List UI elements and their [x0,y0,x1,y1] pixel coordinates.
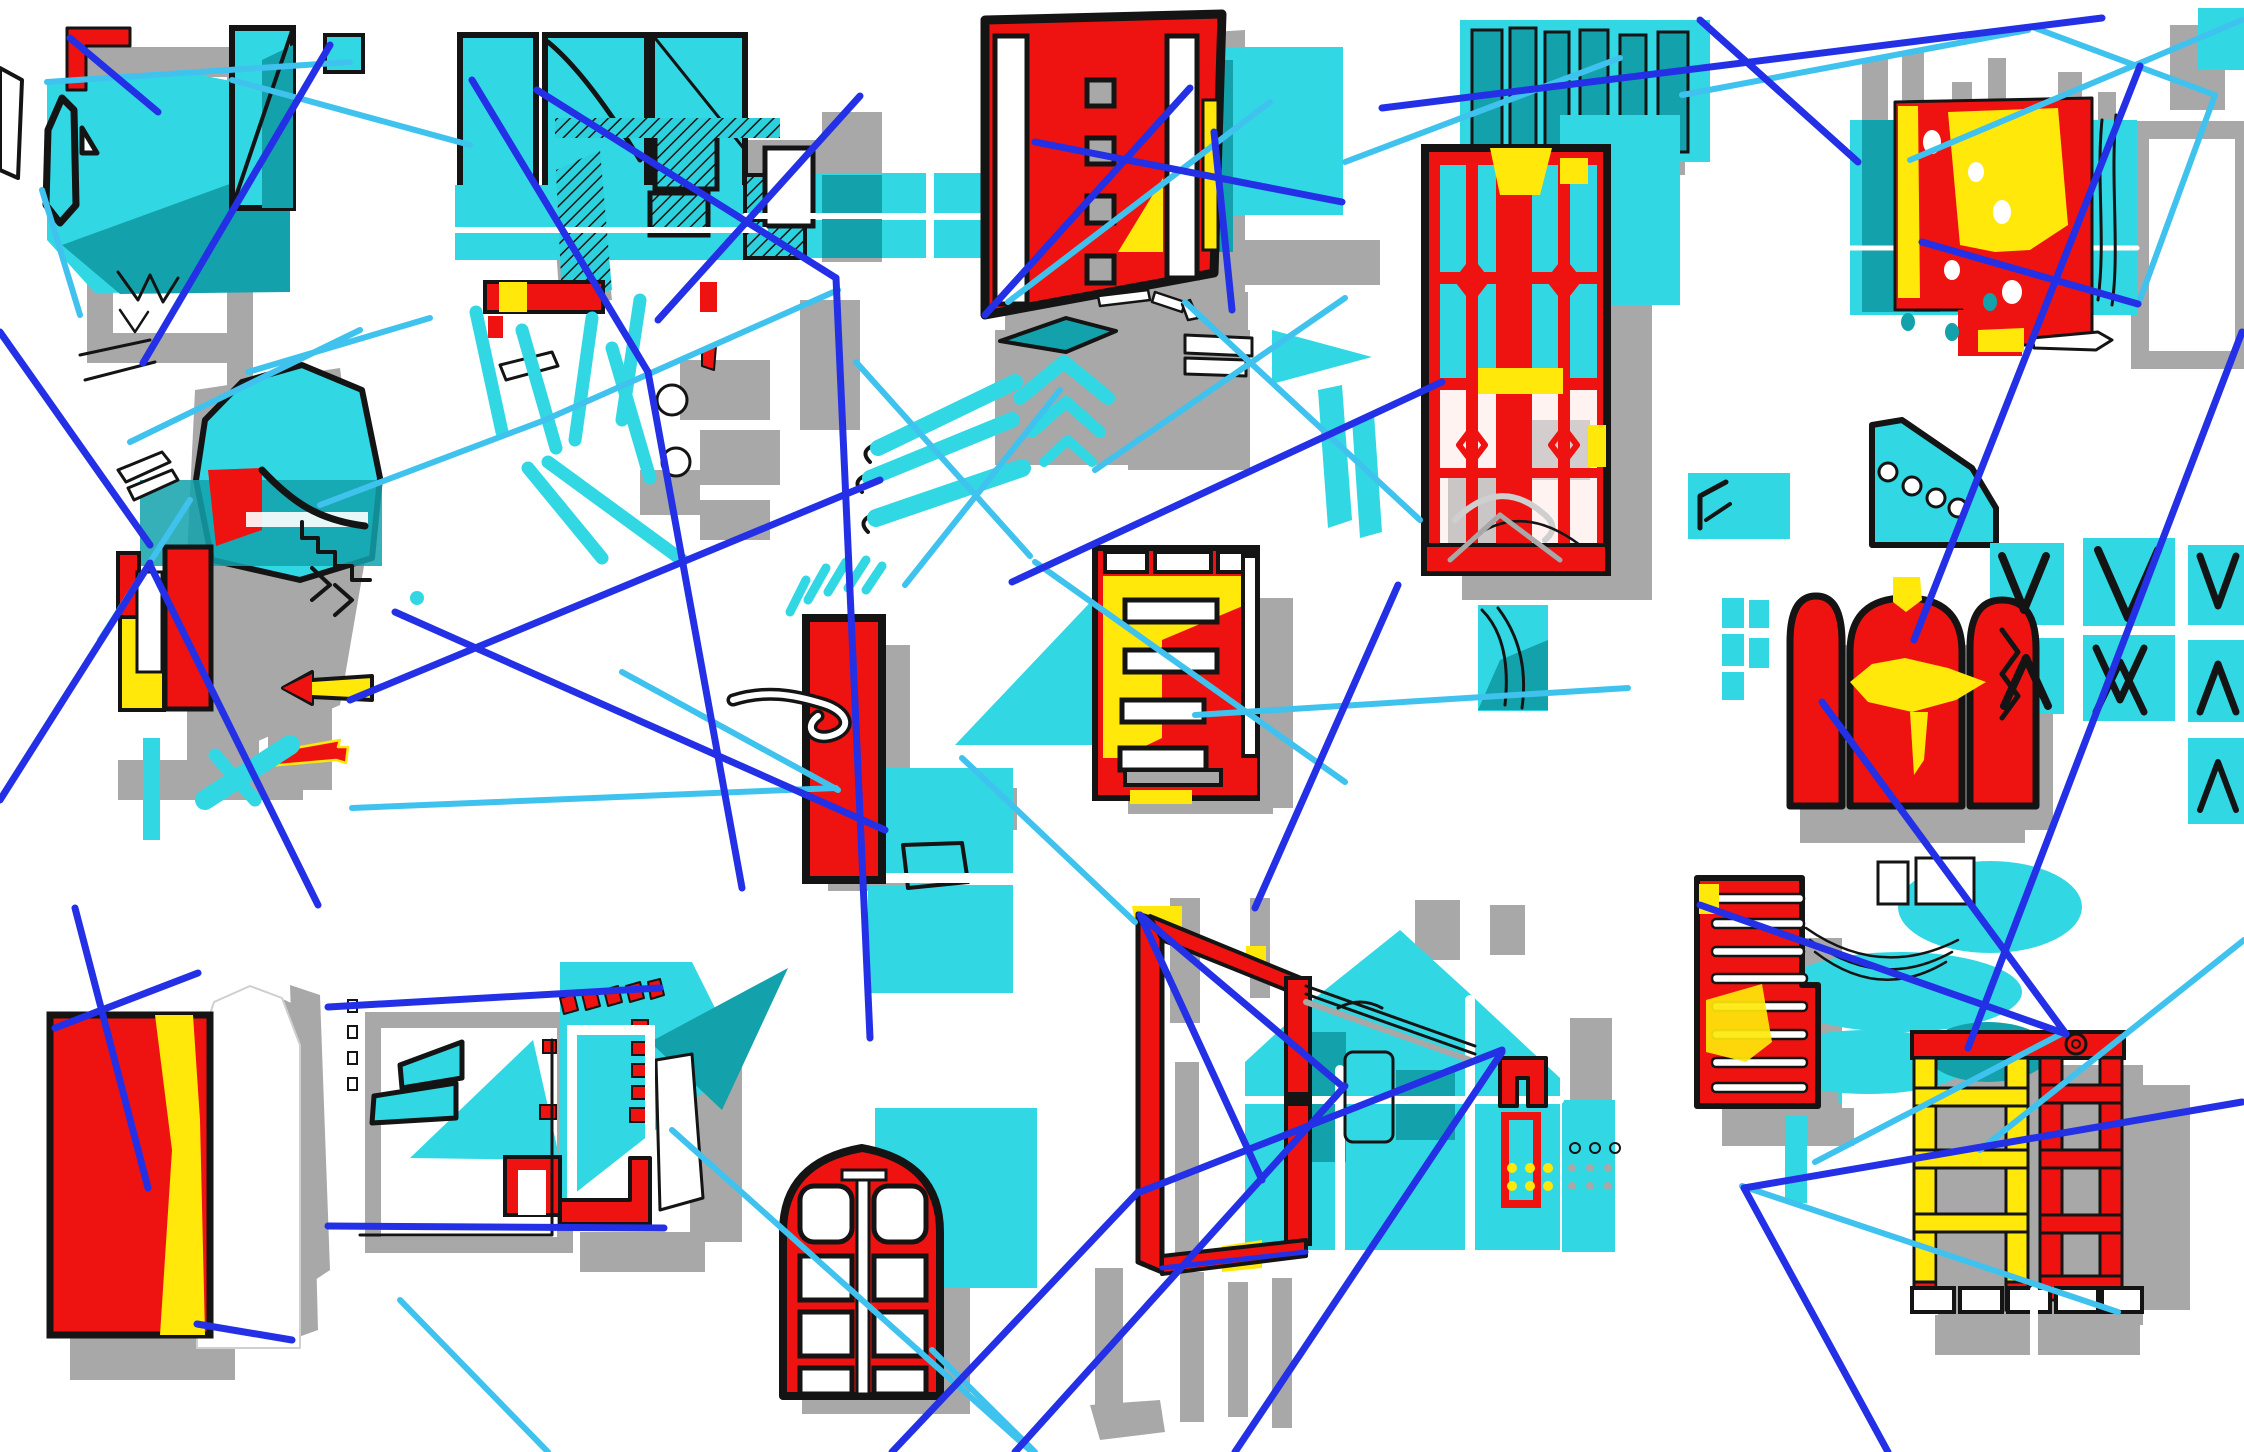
gray-blob-b5 [700,500,770,540]
slot-1 [1125,600,1217,622]
gray-dot-2 [1586,1164,1594,1172]
gray-hang-r3 [1272,1278,1292,1428]
drip-yellow-2 [1948,108,2068,252]
cyan-strip-t [1785,1115,1807,1203]
pane-l4 [800,1368,852,1394]
cyan-flag-o2 [372,1083,456,1123]
arch-narrow [1790,596,1842,806]
gothic-rail-3 [1440,468,1597,478]
banner-fuzz-3 [828,562,846,592]
gray-blob-r2 [1490,905,1525,955]
sky-line-5 [248,318,430,372]
cyan-shard-1 [1318,385,1352,528]
door-inner-white-right [1167,36,1197,278]
ladder-rd-rung-3 [2040,1215,2122,1233]
drip-teal-3 [1983,293,1997,311]
scribble-v-2 [120,310,148,332]
drip-hole-2 [1968,162,1984,182]
yellow-cell-b [499,282,527,312]
comb-slot-3 [1712,947,1804,956]
comb-slot-7 [1712,1058,1807,1067]
red-column-f [165,547,211,709]
yellow-dot-1 [1507,1163,1517,1173]
gothic-mullion-1 [1466,165,1478,555]
gray-hang-r2 [1228,1282,1248,1417]
base-block-1 [1912,1288,1954,1312]
banner-fuzz-5 [866,566,882,590]
slot-4 [1120,748,1206,770]
trap-mid-gap [1286,1092,1310,1106]
drip-yellow-bottom [1978,328,2024,352]
gray-block-b1 [800,300,860,430]
header-cell-2 [1155,552,1211,572]
cyan-corner-tr [2198,8,2244,70]
red-u-o-slot [518,1170,546,1215]
yellow-dot-6 [1543,1181,1553,1191]
sky-line-23 [400,1300,548,1452]
gray-dot-3 [1604,1164,1612,1172]
pane-l2 [800,1256,852,1300]
pane-l1 [800,1186,852,1242]
red-bit-o1 [540,1105,556,1119]
drip-hole-5 [2002,280,2022,304]
red-bit-b1 [488,316,503,338]
cyan-square-small-a [325,35,363,72]
door-inner-white-left [995,36,1027,304]
pane-r2 [874,1256,926,1300]
door-post [857,1176,869,1394]
door-square-4 [1087,256,1114,283]
drip-yellow-1 [1898,106,1920,298]
claw-ray-3 [876,468,1022,518]
pane-r1 [874,1186,926,1242]
gray-dot-5 [1586,1182,1594,1190]
cyan-tile-j4 [1749,638,1769,668]
header-cell-1 [1105,552,1147,572]
cyan-tile-j3 [1722,634,1744,666]
comb-slot-1 [1712,894,1804,903]
pane-r4 [874,1368,926,1394]
base-block-3 [2008,1288,2050,1312]
cyan-strip-f [143,738,160,840]
edge-shard-left [0,68,22,178]
ladder-rd-rung-2 [2040,1150,2122,1168]
chain-circle-1 [1879,463,1897,481]
trap-left-bar [1138,914,1162,1272]
claw-ray-1 [878,382,1015,448]
trap-mid-bar [1286,978,1310,1244]
gothic-yellow-tr [1560,158,1588,184]
collage-canvas [0,0,2244,1452]
gray-blob-b3 [700,430,780,485]
gray-foot-r [1090,1400,1165,1440]
base-block-2 [1960,1288,2002,1312]
block-sketch-1 [1878,862,1908,904]
chain-circle-2 [1903,477,1921,495]
ladder-yl-rung-3 [1914,1214,2028,1232]
gray-dot-1 [1568,1164,1576,1172]
gray-band-p [580,1232,705,1272]
drip-hole-3 [1993,200,2011,224]
blue-line-10 [328,1226,664,1228]
cyan-hook-rect [1688,473,1790,539]
gray-hang-r1 [1180,1272,1204,1422]
gray-blob-b2 [680,360,770,420]
cyan-stick-3 [575,318,592,440]
drip-hole-4 [1944,260,1960,280]
yellow-dot-4 [1507,1181,1517,1191]
cyan-dot [410,591,424,605]
drip-teal-1 [1901,313,1915,331]
yellow-dot-3 [1543,1163,1553,1173]
gray-dot-4 [1568,1182,1576,1190]
door-square-1 [1087,80,1114,106]
banner-fuzz-1 [790,580,806,612]
yellow-dot-5 [1525,1181,1535,1191]
blue-line-6 [0,332,150,545]
gothic-yellow-mid [1478,368,1563,394]
blue-line-21 [1700,20,1858,162]
dot-col-2 [348,1026,357,1038]
cyan-tile-j1 [1722,598,1744,628]
cyan-shard-2 [1352,414,1382,538]
drip-teal-2 [1945,323,1959,341]
cyan-tile-j5 [1722,672,1744,700]
yellow-bit-e [1130,790,1192,804]
cyan-tile-j2 [1749,600,1769,628]
sky-line-15 [352,788,836,808]
cyan-band-r [1562,1100,1615,1252]
yellow-dot-2 [1525,1163,1535,1173]
slot-3 [1122,700,1204,722]
cyan-stick-2 [522,330,556,448]
pane-l3 [800,1312,852,1356]
door-post-t [842,1170,886,1180]
white-post-e [1243,556,1257,756]
chain-circle-3 [1927,489,1945,507]
comb-slot-8 [1712,1083,1807,1092]
dot-col-4 [348,1078,357,1090]
gray-dot-6 [1604,1182,1612,1190]
comb-slot-4 [1712,974,1807,983]
red-bit-o2 [543,1040,556,1053]
gray-bar-e [1125,770,1221,785]
circle-sketch-1 [657,385,687,415]
dot-col-3 [348,1052,357,1064]
red-banner [806,618,882,880]
gothic-yellow-right [1588,425,1606,467]
teal-stripe-k1 [1862,120,1894,312]
gray-strip-r2 [1175,1062,1199,1267]
gray-step-c [1128,408,1250,470]
cyan-square-mid-2 [868,885,1013,993]
shape-layers [0,8,2244,1452]
gothic-mullion-2 [1558,165,1570,555]
banner-fuzz-2 [808,568,826,600]
cyan-triangle-h [955,592,1100,745]
abstract-collage-artwork [0,0,2244,1452]
red-bit-b2 [700,282,717,312]
